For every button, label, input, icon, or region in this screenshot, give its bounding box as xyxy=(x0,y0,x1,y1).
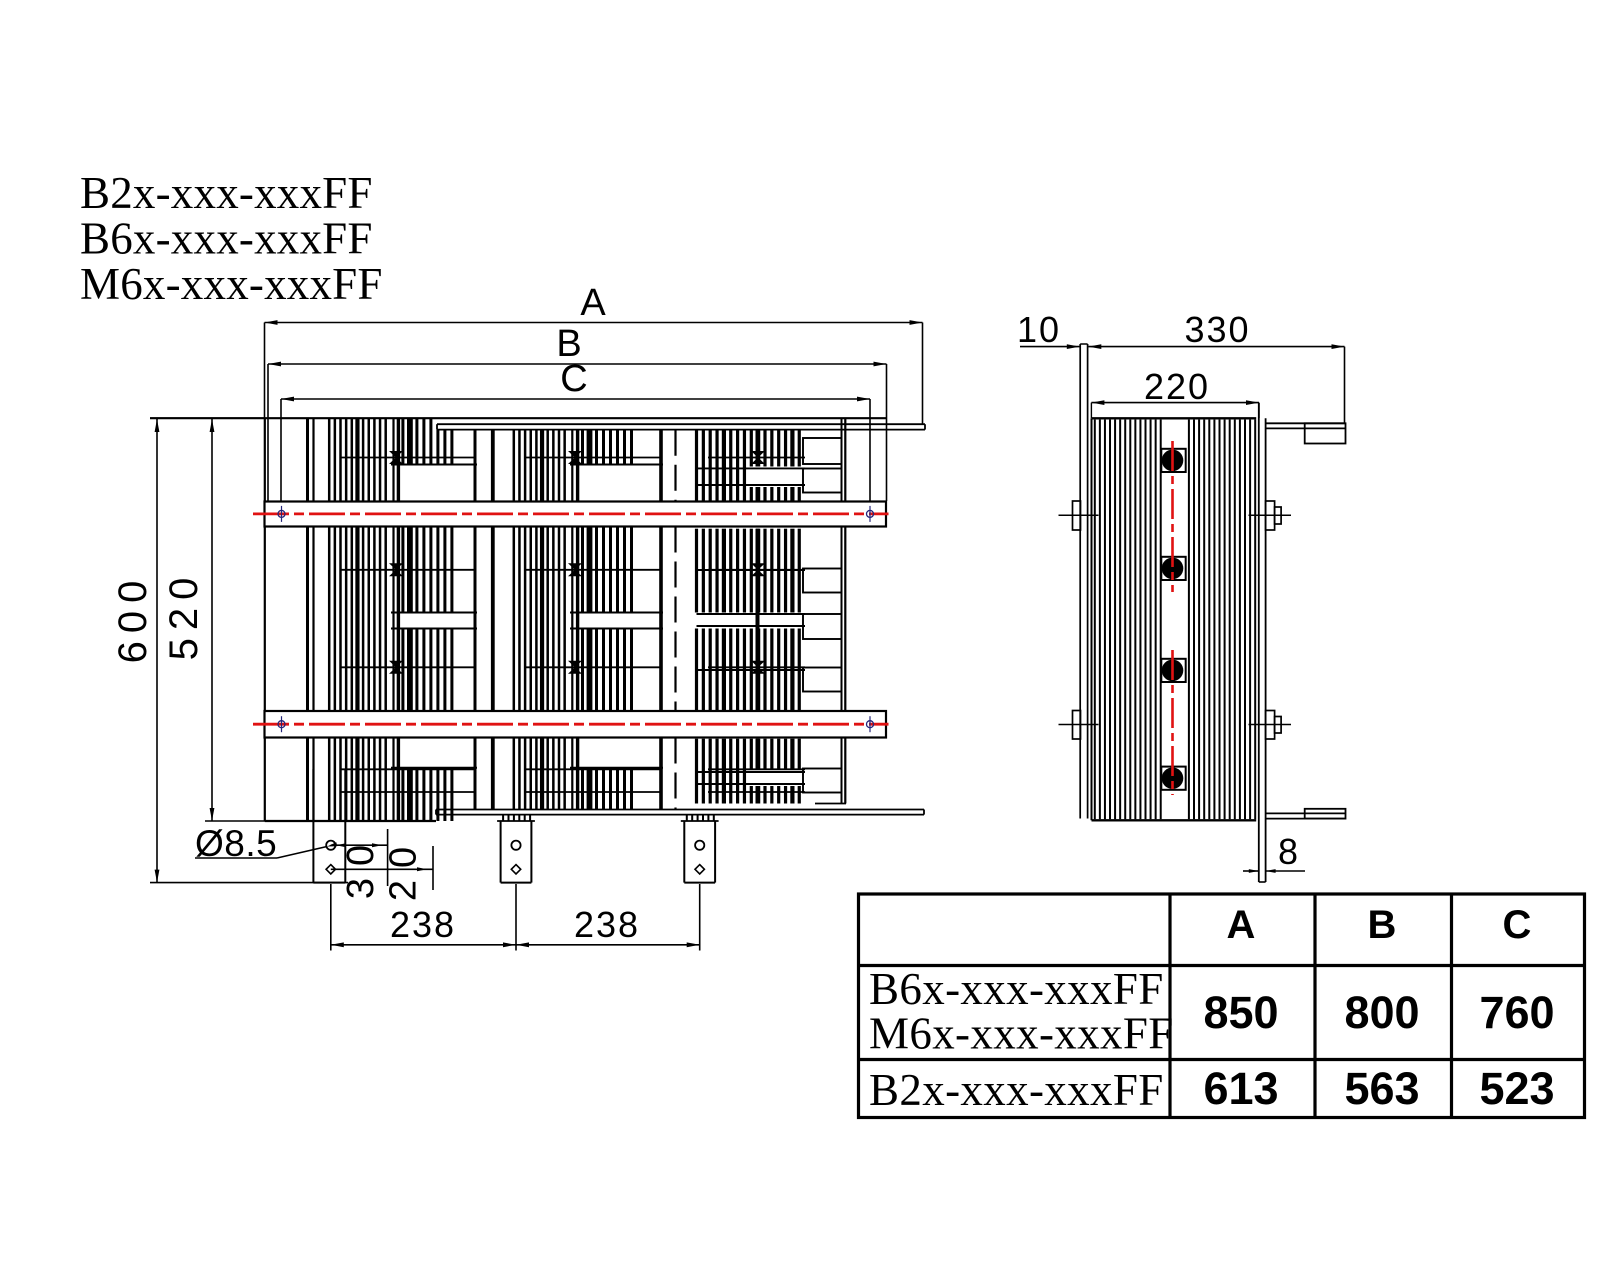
svg-text:C: C xyxy=(1503,903,1532,947)
svg-text:330: 330 xyxy=(1184,309,1250,350)
svg-text:B2x-xxx-xxxFF: B2x-xxx-xxxFF xyxy=(869,1065,1164,1115)
svg-text:613: 613 xyxy=(1203,1063,1278,1114)
svg-text:800: 800 xyxy=(1344,987,1419,1038)
svg-text:B: B xyxy=(1368,903,1397,947)
svg-text:563: 563 xyxy=(1344,1063,1419,1114)
svg-text:238: 238 xyxy=(574,904,640,945)
svg-text:30: 30 xyxy=(340,833,382,899)
svg-text:B6x-xxx-xxxFF: B6x-xxx-xxxFF xyxy=(80,214,373,264)
svg-text:10: 10 xyxy=(1017,309,1061,350)
svg-text:220: 220 xyxy=(1144,366,1210,407)
svg-text:8: 8 xyxy=(1278,831,1298,872)
svg-text:600: 600 xyxy=(111,573,155,664)
svg-text:A: A xyxy=(1227,903,1256,947)
svg-text:B6x-xxx-xxxFF: B6x-xxx-xxxFF xyxy=(869,964,1164,1014)
svg-text:523: 523 xyxy=(1479,1063,1554,1114)
svg-text:20: 20 xyxy=(383,835,425,901)
svg-text:760: 760 xyxy=(1479,987,1554,1038)
svg-text:M6x-xxx-xxxFF: M6x-xxx-xxxFF xyxy=(80,259,383,309)
svg-text:M6x-xxx-xxxFF: M6x-xxx-xxxFF xyxy=(869,1009,1174,1059)
svg-text:C: C xyxy=(560,358,587,400)
svg-text:A: A xyxy=(580,282,606,324)
svg-text:520: 520 xyxy=(162,570,206,661)
svg-text:238: 238 xyxy=(390,904,456,945)
svg-text:850: 850 xyxy=(1203,987,1278,1038)
svg-text:B2x-xxx-xxxFF: B2x-xxx-xxxFF xyxy=(80,168,373,218)
